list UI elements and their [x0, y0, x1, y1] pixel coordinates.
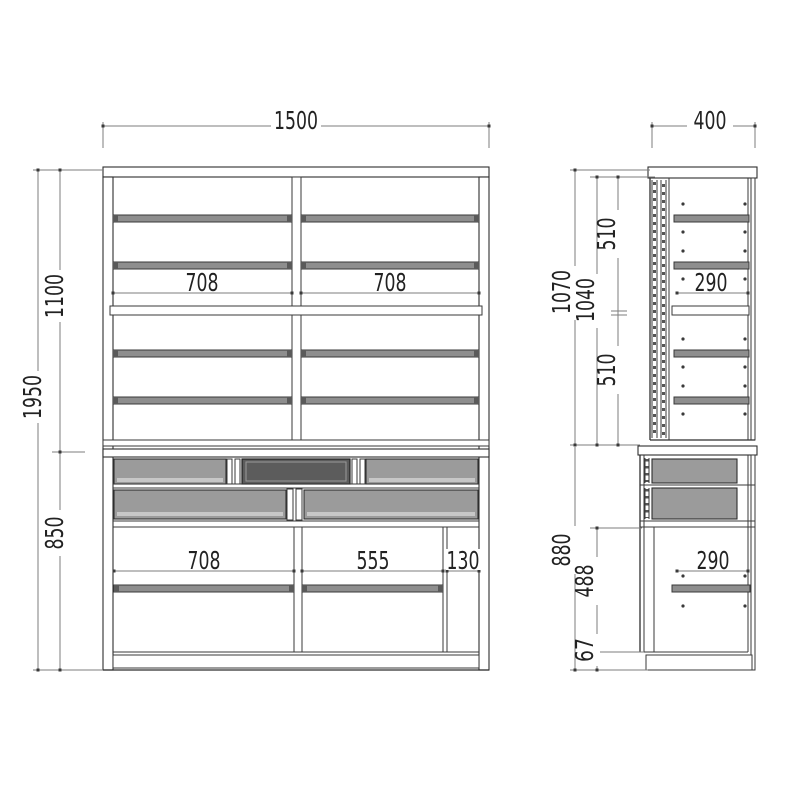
front-lower-section	[113, 527, 479, 668]
dim-front-upper-height: 1100	[40, 274, 69, 318]
dim-side-upper-shelf-depth: 290	[695, 268, 728, 297]
side-drawer-box-1	[652, 459, 737, 483]
front-counter-board	[103, 449, 489, 457]
front-lower-shelf-middle	[302, 585, 443, 592]
dim-front-upper-right-width: 708	[374, 268, 407, 297]
front-drawer-row-1	[113, 459, 479, 488]
side-view: 400 1070 1040 510 510 290 880 488 67 290	[547, 106, 757, 672]
dim-side-overall-depth: 400	[694, 106, 727, 135]
side-upper-shelves	[672, 215, 749, 404]
front-drawer-top-middle	[242, 459, 350, 484]
front-base-plinth	[113, 655, 479, 668]
side-drawer-box-2	[652, 488, 737, 519]
front-left-stile	[103, 177, 113, 670]
dim-side-upper-inner-height: 1040	[571, 278, 600, 322]
technical-drawing-page: 1500 1950 1100 850 708 708 708 555 130	[0, 0, 800, 800]
dim-front-lower-middle-width: 555	[357, 546, 390, 575]
dim-front-upper-left-width: 708	[186, 268, 219, 297]
dim-front-lower-height: 850	[40, 517, 69, 550]
side-back-panel-lower	[751, 455, 755, 670]
dim-front-lower-right-width: 130	[447, 546, 480, 575]
side-top-board	[648, 167, 757, 178]
front-lower-shelf-left	[114, 585, 294, 592]
front-right-stile	[479, 177, 489, 670]
side-back-panel-upper	[751, 178, 755, 440]
front-upper-bottom-board	[103, 440, 489, 446]
front-top-board	[103, 167, 489, 177]
dim-side-lower-shelf-depth: 290	[697, 546, 730, 575]
side-upper-unit	[648, 167, 757, 440]
front-drawer-row-2	[113, 489, 479, 527]
dim-side-upper-span-top: 510	[592, 218, 621, 251]
front-view: 1500 1950 1100 850 708 708 708 555 130	[18, 106, 491, 672]
dim-side-lower-unit-height: 880	[547, 534, 576, 567]
side-drawers	[640, 458, 755, 527]
side-counter-board	[638, 446, 757, 455]
front-lower-divider	[294, 527, 302, 652]
front-upper-section	[103, 177, 489, 446]
front-fixed-shelf	[110, 306, 482, 315]
cabinet-dimension-drawing: 1500 1950 1100 850 708 708 708 555 130	[0, 0, 800, 800]
side-lower-shelf	[672, 585, 750, 592]
dim-front-overall-width: 1500	[274, 106, 318, 135]
dim-side-upper-span-bottom: 510	[592, 354, 621, 387]
dim-side-base-height: 67	[570, 638, 599, 662]
dim-side-lower-inner-height: 488	[570, 565, 599, 598]
side-base-plinth	[646, 655, 752, 670]
dim-front-lower-left-width: 708	[188, 546, 221, 575]
dim-front-overall-height: 1950	[18, 375, 47, 419]
side-fixed-shelf	[672, 306, 749, 315]
